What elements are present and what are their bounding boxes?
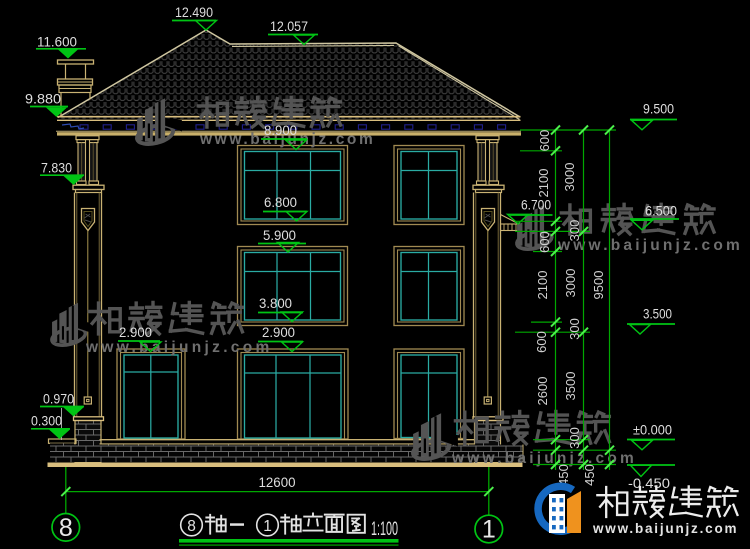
- svg-text:±0.000: ±0.000: [633, 423, 672, 438]
- svg-text:2.900: 2.900: [119, 325, 152, 340]
- svg-text:3.500: 3.500: [643, 307, 672, 322]
- svg-text:2100: 2100: [535, 271, 550, 300]
- svg-text:6.800: 6.800: [264, 195, 297, 210]
- svg-text:300: 300: [567, 220, 582, 242]
- svg-text:450: 450: [556, 464, 571, 486]
- svg-text:1: 1: [482, 516, 496, 544]
- svg-text:1:100: 1:100: [371, 518, 398, 540]
- svg-text:12.057: 12.057: [270, 19, 308, 34]
- svg-text:www.baijunjz.com: www.baijunjz.com: [557, 237, 743, 254]
- svg-text:300: 300: [567, 427, 582, 449]
- svg-text:600: 600: [537, 130, 552, 152]
- svg-text:9.880: 9.880: [25, 92, 61, 107]
- svg-text:0.300: 0.300: [31, 414, 62, 429]
- svg-text:9500: 9500: [591, 271, 606, 300]
- svg-text:1: 1: [263, 518, 272, 535]
- svg-text:8.900: 8.900: [264, 123, 297, 138]
- svg-text:6.500: 6.500: [645, 204, 677, 219]
- svg-text:5.900: 5.900: [263, 228, 296, 243]
- svg-text:300: 300: [567, 318, 582, 340]
- svg-text:0.970: 0.970: [43, 392, 74, 407]
- svg-text:450: 450: [582, 464, 597, 486]
- svg-text:11.600: 11.600: [37, 35, 77, 50]
- svg-text:www.baijunjz.com: www.baijunjz.com: [85, 339, 273, 356]
- svg-text:3000: 3000: [563, 269, 578, 298]
- svg-text:7.830: 7.830: [41, 161, 72, 176]
- svg-text:8: 8: [59, 514, 73, 542]
- svg-text:6.700: 6.700: [521, 198, 551, 213]
- svg-text:3500: 3500: [563, 372, 578, 401]
- svg-text:3.800: 3.800: [259, 296, 292, 311]
- svg-text:12.490: 12.490: [175, 5, 213, 20]
- svg-text:3000: 3000: [562, 163, 577, 192]
- svg-text:12600: 12600: [259, 475, 296, 490]
- svg-text:-0.450: -0.450: [628, 476, 670, 491]
- svg-text:9.500: 9.500: [643, 102, 674, 117]
- svg-text:www.baijunjz.com: www.baijunjz.com: [592, 521, 738, 536]
- svg-text:8: 8: [187, 518, 196, 535]
- svg-text:2600: 2600: [535, 377, 550, 406]
- svg-text:2100: 2100: [536, 169, 551, 198]
- svg-text:600: 600: [537, 231, 552, 253]
- svg-text:600: 600: [534, 331, 549, 353]
- svg-text:2.900: 2.900: [262, 325, 295, 340]
